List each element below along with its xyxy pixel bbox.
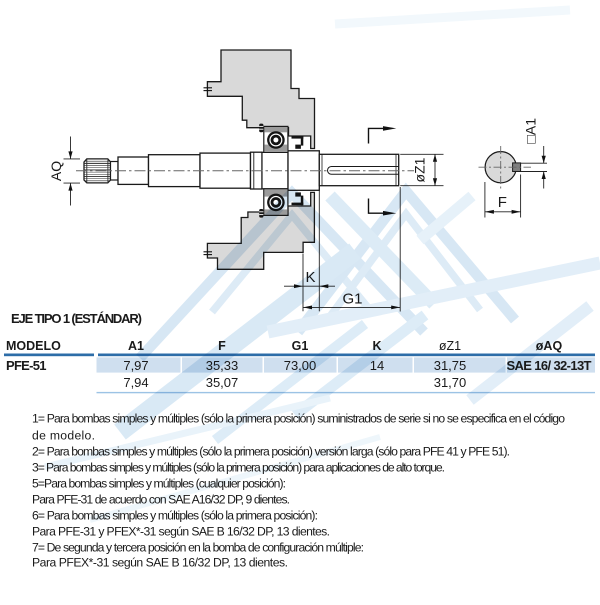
svg-text:7= De segunda y tercera posici: 7= De segunda y tercera posición en la b…	[32, 541, 364, 555]
svg-text:MODELO: MODELO	[6, 339, 61, 353]
svg-text:øZ1: øZ1	[412, 157, 428, 182]
svg-text:31,75: 31,75	[434, 358, 467, 373]
svg-text:Para PFE-31 y PFEX*-31 según S: Para PFE-31 y PFEX*-31 según SAE B 16/32…	[32, 525, 330, 539]
svg-text:PFE-51: PFE-51	[6, 358, 47, 373]
svg-text:de modelo.: de modelo.	[32, 429, 95, 443]
svg-text:6= Para bombas simples y múlti: 6= Para bombas simples y múltiples (sólo…	[32, 509, 318, 523]
svg-text:7,94: 7,94	[123, 375, 148, 390]
svg-text:øZ1: øZ1	[439, 339, 461, 353]
svg-text:35,07: 35,07	[206, 375, 239, 390]
svg-text:G1: G1	[292, 339, 309, 353]
svg-text:EJE TIPO 1 (ESTÁNDAR): EJE TIPO 1 (ESTÁNDAR)	[11, 311, 142, 326]
svg-text:3= Para bombas simples y múlti: 3= Para bombas simples y múltiples (sólo…	[32, 461, 445, 475]
svg-text:Para PFEX*-31 según SAE B 16/3: Para PFEX*-31 según SAE B 16/32 DP, 13 d…	[32, 556, 288, 570]
svg-text:31,70: 31,70	[434, 375, 467, 390]
svg-text:5=Para bombas simples y múltip: 5=Para bombas simples y múltiples (cualq…	[32, 477, 286, 491]
svg-text:F: F	[498, 194, 507, 211]
svg-text:AQ: AQ	[48, 161, 64, 181]
svg-text:□A1: □A1	[523, 118, 539, 144]
